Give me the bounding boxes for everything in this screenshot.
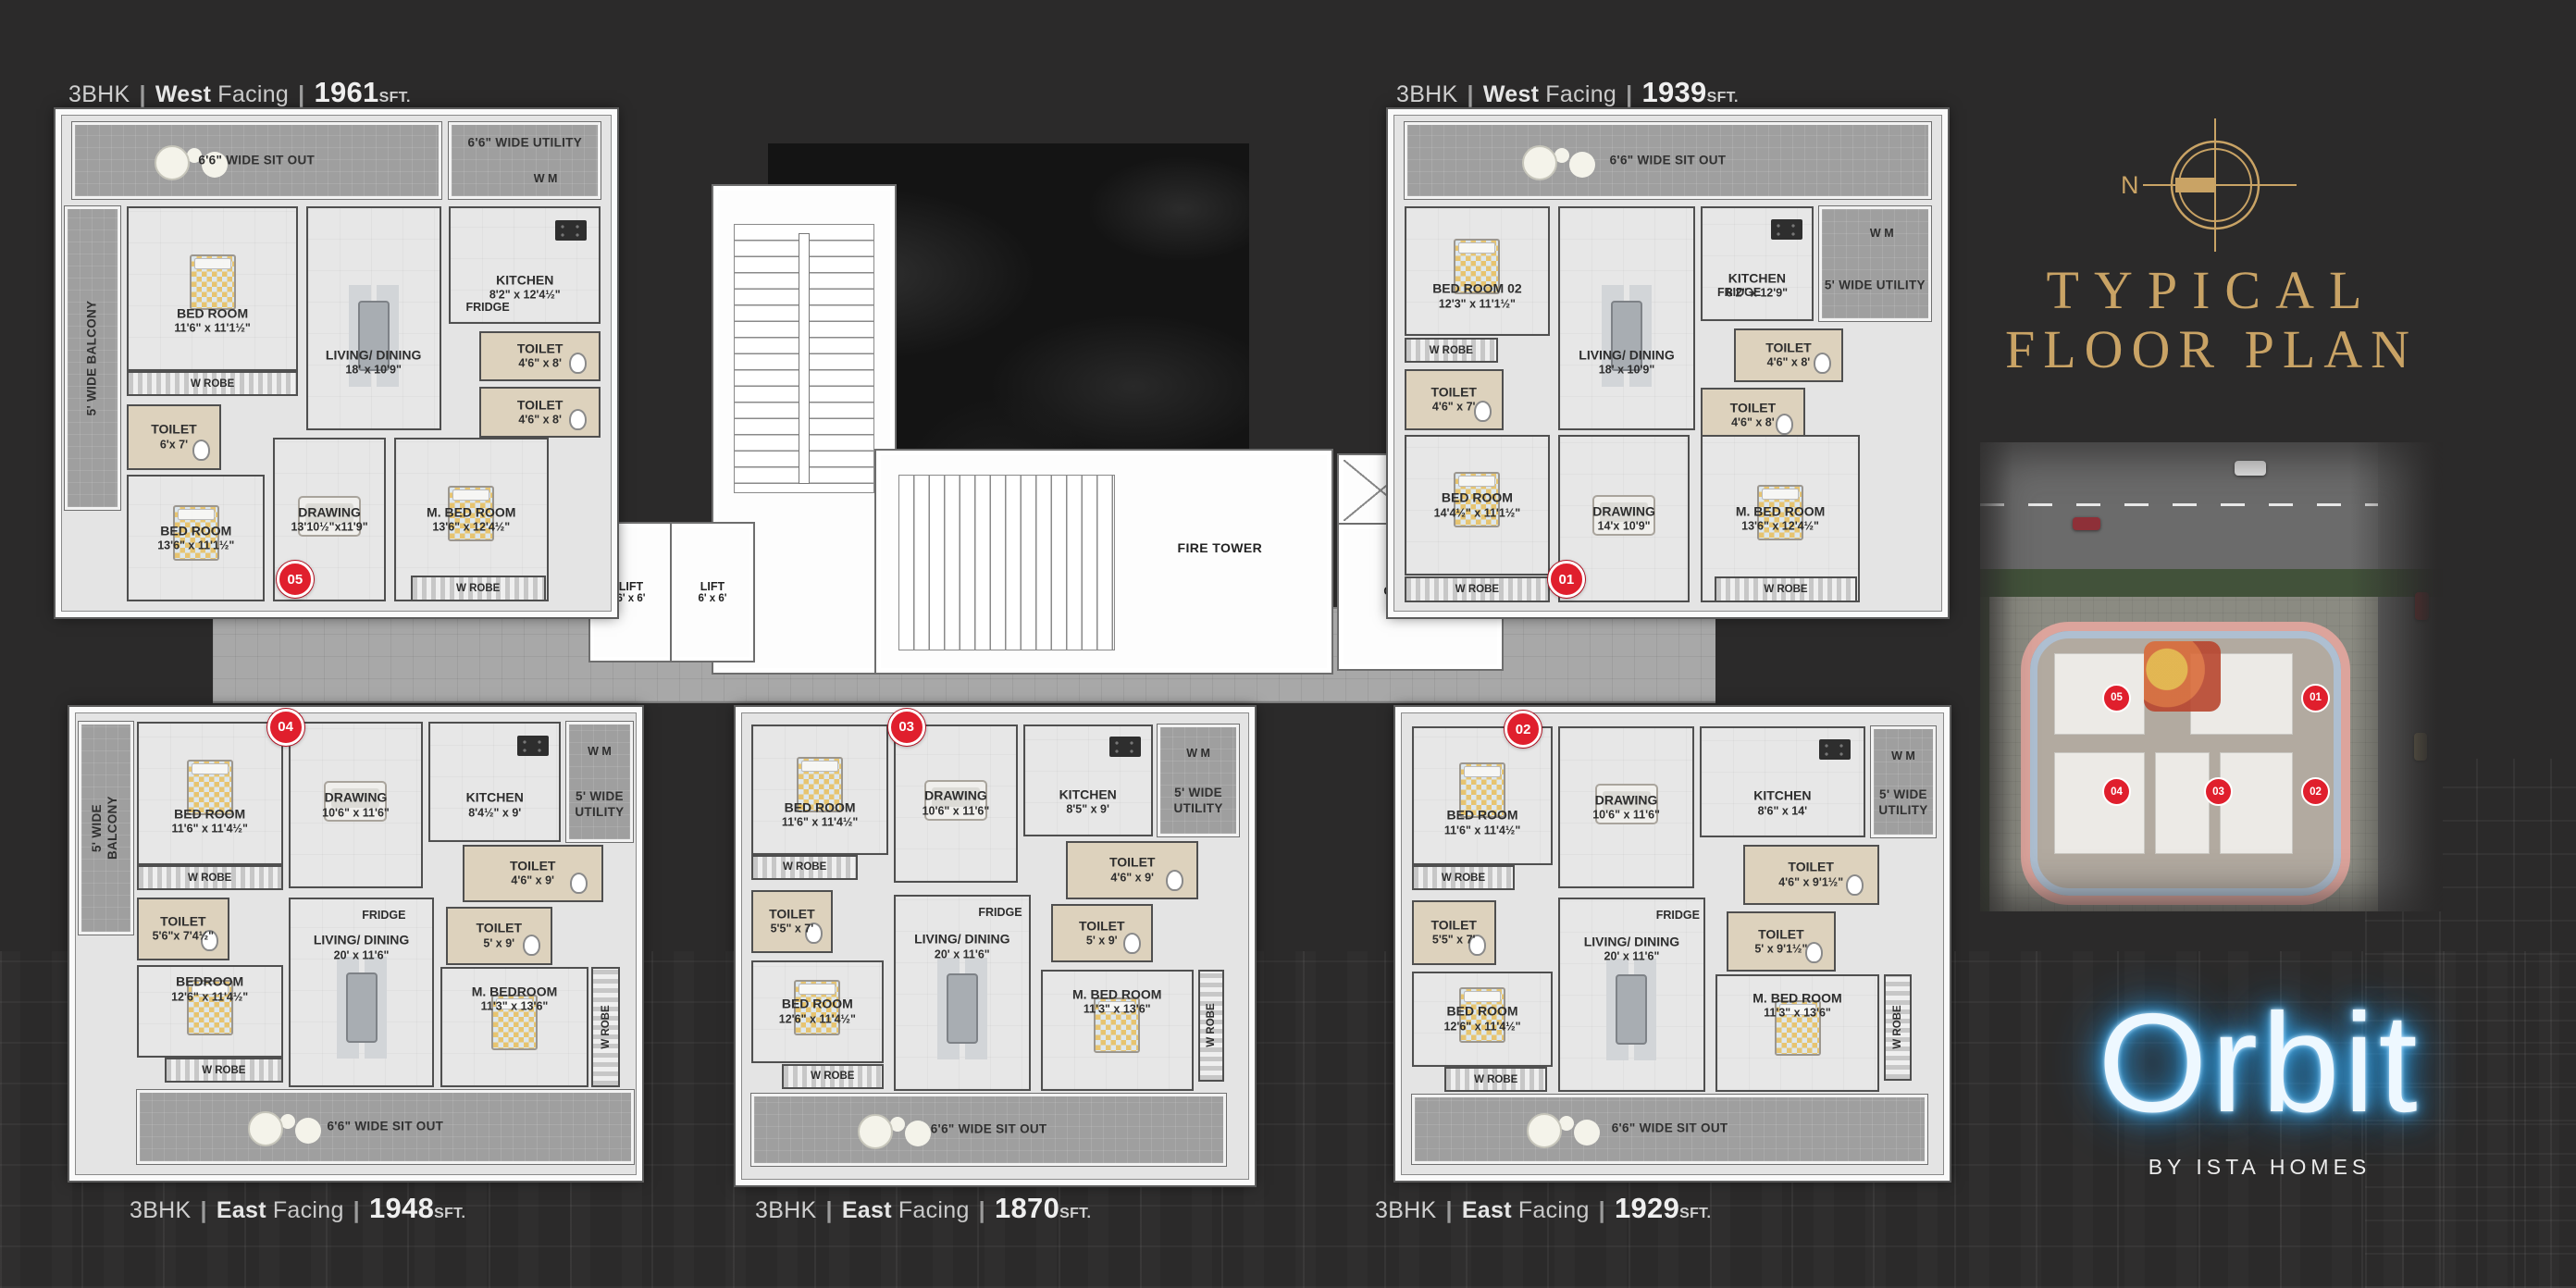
area-label: 6'6" WIDE SIT OUT [1425,1121,1915,1137]
stove-icon [517,736,549,756]
north-label: N [2121,171,2139,199]
room-drawing: DRAWING10'6" x 11'6" [1558,726,1694,888]
road-vertical [2378,442,2443,911]
sofa-icon [924,780,987,821]
room-toilet: TOILET4'6" x 9' [1066,841,1198,899]
room-w-robe: W ROBE [411,576,546,601]
title-part-ta: 1948 [369,1192,434,1224]
stove-icon [1819,739,1851,760]
area-label: 5' WIDE BALCONY [90,776,121,880]
unit-title-01: 3BHK|WestFacing|1939SFT. [1396,76,1739,109]
fire-stair-treads [898,475,1114,651]
wc-icon [570,873,588,894]
room-bed-room: BED ROOM11'6" x 11'4½" [751,724,888,855]
area-label: FRIDGE [1641,909,1715,923]
bed-icon [187,760,233,815]
dining-icon [1616,974,1647,1045]
wc-icon [523,935,540,956]
room-m-bed-room: M. BED ROOM11'3" x 13'6" [1041,970,1194,1091]
label-fridge: FRIDGE [965,902,1036,925]
unit-number-badge-02: 02 [1505,711,1542,748]
bed-icon [1094,997,1140,1053]
room-bed-room: BED ROOM11'6" x 11'1½" [127,206,297,370]
stair-rail [799,233,810,483]
room-dimension: 11'6" x 11'4½" [1417,824,1549,838]
bed-icon [797,757,843,812]
floor-plan-unit-05: 6'6" WIDE SIT OUT6'6" WIDE UTILITYW M5' … [56,109,617,617]
room-drawing: DRAWING10'6" x 11'6" [289,722,424,888]
label-w-m: W M [566,740,633,763]
room-m-bedroom: M. BEDROOM11'3" x 13'6" [440,967,589,1087]
bed-icon [794,980,840,1035]
title-part-sep: | [826,1197,833,1223]
floor-plan-unit-01: 6'6" WIDE SIT OUTBED ROOM 0212'3" x 11'1… [1388,109,1948,617]
title-part-sep: | [298,81,304,107]
unit-title-03: 3BHK|EastFacing|1870SFT. [755,1192,1091,1225]
title-part-ta: 1929 [1615,1192,1679,1224]
title-part-tb: 3BHK [130,1197,192,1223]
title-part-tu: SFT. [379,90,411,105]
room-name: TOILET [755,906,829,923]
floor-plan-unit-04: 5' WIDE BALCONYBED ROOM11'6" x 11'4½"W R… [69,707,642,1181]
title-part-tf: West [1483,81,1539,107]
room-6-6-wide-sit-out: 6'6" WIDE SIT OUT [1405,122,1931,199]
room-toilet: TOILET4'6" x 9'1½" [1743,845,1879,905]
area-label: W ROBE [599,1005,612,1048]
stove-icon [1109,737,1141,757]
room-bed-room: BED ROOM12'6" x 11'4½" [1412,972,1554,1067]
area-label: W M [1851,227,1913,241]
room-w-robe: W ROBE [137,865,283,890]
room-living-dining: LIVING/ DINING18' x 10'9" [1558,206,1695,430]
unit-title-05: 3BHK|WestFacing|1961SFT. [68,76,411,109]
dining-icon [346,972,378,1043]
room-5-wide-balcony: 5' WIDE BALCONY [65,206,120,510]
sofa-icon [298,496,361,537]
stove-icon [1771,219,1802,240]
wc-icon [1805,942,1823,963]
area-label: FRIDGE [451,302,525,316]
room-name: TOILET [1415,917,1492,934]
title-part-ta: 1939 [1641,76,1706,108]
planter-icon [155,145,190,180]
area-label: FRIDGE [966,906,1034,921]
label-fridge: FRIDGE [449,296,526,321]
running-track [2021,622,2350,904]
car [2415,592,2429,620]
wc-icon [192,440,210,461]
title-part-tu: SFT. [434,1206,465,1221]
room-name: TOILET [1055,918,1149,935]
room-bed-room: BED ROOM11'6" x 11'4½" [1412,726,1554,865]
site-unit-marker-05: 05 [2102,684,2131,712]
unit-number-badge-04: 04 [267,709,304,746]
label-w-m: W M [1849,221,1914,246]
room-name: LIVING/ DINING [293,933,430,949]
room-name: TOILET [1071,855,1194,872]
room-dimension: 20' x 11'6" [898,947,1026,962]
planter-icon [1522,145,1557,180]
lift-1-dim: 6' x 6' [616,593,645,604]
area-label: W ROBE [415,582,541,595]
lift-2: LIFT 6' x 6' [675,527,749,657]
room-6-6-wide-sit-out: 6'6" WIDE SIT OUT [72,122,441,199]
area-label: FRIDGE [1703,287,1777,302]
title-part-tw: Facing [273,1197,344,1223]
area-label: W ROBE [1409,583,1545,596]
bed-icon [190,254,236,310]
area-label: W ROBE [1416,871,1511,884]
wc-icon [569,353,587,374]
room-toilet: TOILET4'6" x 7' [1405,369,1504,430]
room-name: TOILET [1408,384,1500,401]
brand-logo: Orbit [2047,983,2472,1145]
room-dimension: 8'6" x 14' [1704,804,1860,819]
bed-icon [491,995,538,1050]
site-unit-marker-02: 02 [2301,777,2330,806]
room-bed-room-02: BED ROOM 0212'3" x 11'1½" [1405,206,1550,336]
label-fridge: FRIDGE [344,905,423,928]
label-w-m: W M [513,167,578,192]
title-part-sep: | [140,81,146,107]
courtyard [2030,631,2341,895]
title-part-ta: 1961 [314,76,378,108]
wc-icon [1123,933,1141,954]
title-part-sep: | [1599,1197,1605,1223]
title-part-sep: | [1626,81,1632,107]
bed-icon [1757,485,1803,540]
room-name: LIVING/ DINING [898,931,1026,947]
room-bed-room: BED ROOM11'6" x 11'4½" [137,722,283,865]
title-part-tb: 3BHK [1375,1197,1437,1223]
room-w-robe: W ROBE [751,855,858,880]
area-label: FRIDGE [346,909,422,923]
bed-icon [1459,762,1505,818]
tower-roof [2156,753,2210,853]
area-label: W ROBE [1205,1004,1218,1047]
room-dimension: 8'4½" x 9' [433,806,556,821]
area-label: 6'6" WIDE SIT OUT [763,1121,1214,1137]
lift-2-label: LIFT [700,580,724,593]
fire-tower: FIRE TOWER [881,455,1327,668]
wc-icon [1468,935,1486,956]
room-toilet: TOILET5' x 9' [1051,904,1153,962]
bed-icon [1775,1000,1821,1056]
title-part-tb: 3BHK [755,1197,817,1223]
planter-icon [1527,1113,1562,1148]
room-toilet: TOILET5' x 9' [446,907,552,965]
bed-icon [1454,239,1500,294]
area-label: 6'6" WIDE UTILITY [455,136,595,152]
floor-plan-unit-03: BED ROOM11'6" x 11'4½"W ROBEDRAWING10'6"… [736,707,1255,1185]
title-part-tf: West [155,81,211,107]
title-part-sep: | [1446,1197,1453,1223]
building-plot [1989,597,2378,911]
sofa-icon [1592,495,1655,536]
label-fridge: FRIDGE [1640,905,1715,928]
room-toilet: TOILET4'6" x 8' [479,331,601,382]
room-toilet: TOILET4'6" x 8' [479,387,601,438]
fire-tower-label: FIRE TOWER [1126,540,1313,555]
wc-icon [201,930,218,951]
area-label: 5' WIDE UTILITY [1824,278,1926,293]
room-6-6-wide-sit-out: 6'6" WIDE SIT OUT [137,1090,634,1164]
room-5-wide-utility: 5' WIDE UTILITY [1158,724,1239,836]
site-unit-marker-01: 01 [2301,684,2330,712]
planter-icon [248,1111,283,1146]
room-w-robe: W ROBE [591,967,619,1087]
room-toilet: TOILET6'x 7' [127,404,220,470]
floor-plan-poster: 2.10M CORRIDOR FIRE TOWER LIFT 6' x 6' L… [0,0,2576,1288]
dining-icon [358,301,390,371]
area-label: W ROBE [1719,583,1852,596]
room-dimension: 11'6" x 11'1½" [132,322,292,337]
area-label: W M [568,745,632,760]
north-compass-icon: N [2086,113,2308,257]
title-part-tf: East [1462,1197,1512,1223]
title-part-tb: 3BHK [68,81,130,107]
room-m-bed-room: M. BED ROOM11'3" x 13'6" [1715,974,1878,1093]
area-label: 5' WIDE UTILITY [1875,787,1932,819]
room-6-6-wide-sit-out: 6'6" WIDE SIT OUT [751,1094,1226,1166]
title-part-tw: Facing [217,81,289,107]
title-part-tu: SFT. [1059,1206,1091,1221]
area-label: W ROBE [1891,1005,1904,1048]
area-label: 6'6" WIDE SIT OUT [82,153,431,168]
bed-icon [173,505,219,561]
area-label: W M [1159,748,1237,762]
area-label: W ROBE [755,861,854,873]
room-kitchen: KITCHEN8'6" x 14' [1700,726,1865,837]
area-label: W ROBE [132,377,292,390]
room-bedroom: BEDROOM12'6" x 11'4½" [137,965,283,1058]
room-bed-room: BED ROOM12'6" x 11'4½" [751,960,884,1063]
area-label: 5' WIDE UTILITY [570,789,628,821]
sofa-icon [324,781,387,822]
room-dimension: 20' x 11'6" [1563,949,1700,964]
room-dimension: 11'6" x 11'4½" [756,816,884,831]
car [2073,517,2100,530]
car [2414,733,2427,761]
title-part-sep: | [353,1197,360,1223]
wc-icon [569,409,587,430]
title-part-sep: | [979,1197,985,1223]
tower-roof [2055,753,2144,853]
title-part-tb: 3BHK [1396,81,1458,107]
title-part-sep: | [1468,81,1474,107]
area-label: 5' WIDE UTILITY [1162,786,1235,817]
room-name: KITCHEN [1704,788,1860,805]
title-part-tf: East [217,1197,266,1223]
room-dimension: 11'6" x 11'4½" [142,823,279,837]
room-drawing: DRAWING10'6" x 11'6" [894,724,1019,884]
room-w-robe: W ROBE [1412,865,1516,890]
label-w-m: W M [1158,743,1239,766]
unit-number-badge-01: 01 [1548,561,1585,598]
room-name: TOILET [141,913,226,930]
room-name: TOILET [1730,926,1831,943]
room-w-robe: W ROBE [165,1058,282,1083]
unit-title-02: 3BHK|EastFacing|1929SFT. [1375,1192,1711,1225]
room-toilet: TOILET5'5" x 7' [751,890,833,953]
title-part-tw: Facing [1518,1197,1590,1223]
label-w-m: W M [1871,745,1936,768]
room-dimension: 8'5" x 9' [1027,803,1148,818]
room-w-robe: W ROBE [1444,1067,1548,1092]
wc-icon [1846,874,1864,896]
room-name: TOILET [1748,859,1875,875]
page-title-line2: FLOOR PLAN [1989,319,2434,381]
unit-title-04: 3BHK|EastFacing|1948SFT. [130,1192,465,1225]
area-label: W ROBE [142,871,279,884]
room-kitchen: KITCHEN8'4½" x 9' [428,722,561,842]
bed-icon [448,486,494,541]
room-name: KITCHEN [1027,786,1148,803]
wc-icon [1474,401,1492,422]
room-toilet: TOILET4'6" x 9' [463,845,603,903]
stove-icon [555,220,587,241]
area-label: W ROBE [1448,1072,1543,1085]
room-dimension: 20' x 11'6" [293,948,430,963]
unit-number-badge-03: 03 [888,709,925,746]
title-part-tu: SFT. [1679,1206,1711,1221]
room-name: LIVING/ DINING [1563,934,1700,950]
area-label: W M [1872,749,1935,764]
title-part-sep: | [201,1197,207,1223]
wc-icon [805,923,823,944]
room-5-wide-balcony: 5' WIDE BALCONY [79,722,132,935]
room-name: KITCHEN [454,272,596,289]
room-w-robe: W ROBE [127,371,297,397]
title-part-ta: 1870 [995,1192,1059,1224]
wc-icon [1166,870,1183,891]
tower-roof [2221,753,2292,853]
title-part-tf: East [842,1197,892,1223]
room-w-robe: W ROBE [1405,576,1550,602]
wc-icon [1814,353,1831,374]
room-toilet: TOILET5'5" x 7' [1412,900,1496,965]
room-w-robe: W ROBE [782,1064,884,1089]
page-title-line1: TYPICAL [1989,263,2434,319]
lift-2-dim: 6' x 6' [698,593,726,604]
room-living-dining: LIVING/ DINING18' x 10'9" [306,206,441,430]
room-w-robe: W ROBE [1198,970,1223,1082]
area-label: W M [514,172,577,187]
room-w-robe: W ROBE [1715,576,1857,602]
title-part-tw: Facing [898,1197,970,1223]
room-kitchen: KITCHEN8'5" x 9' [1023,724,1153,836]
bed-icon [1454,472,1500,527]
lift-1-label: LIFT [619,580,643,593]
area-label: W ROBE [786,1070,880,1083]
area-label: 6'6" WIDE SIT OUT [1418,153,1918,168]
site-unit-marker-04: 04 [2102,777,2131,806]
green-belt [1980,569,2443,597]
room-5-wide-utility: 5' WIDE UTILITY [1871,726,1936,837]
bed-icon [187,980,233,1035]
page-title: TYPICAL FLOOR PLAN [1989,263,2434,381]
dining-icon [1611,301,1642,371]
room-toilet: TOILET5' x 9'1½" [1727,911,1835,972]
room-bed-room: BED ROOM14'4½" x 11'1½" [1405,435,1550,576]
title-part-tw: Facing [1545,81,1616,107]
wc-icon [1776,414,1793,435]
title-part-tu: SFT. [1707,90,1739,105]
site-plan-image: 0501040302 [1980,442,2443,911]
brand-byline: BY ISTA HOMES [2047,1155,2472,1180]
room-toilet: TOILET4'6" x 8' [1734,328,1844,382]
area-label: 5' WIDE BALCONY [84,301,100,416]
room-name: KITCHEN [433,790,556,807]
bed-icon [1459,987,1505,1043]
area-label: W ROBE [169,1063,279,1076]
floor-plan-unit-02: BED ROOM11'6" x 11'4½"W ROBEDRAWING10'6"… [1395,707,1950,1181]
site-unit-marker-03: 03 [2204,777,2233,806]
car [2235,461,2266,476]
playground [2144,641,2221,711]
dining-icon [947,973,978,1044]
area-label: 6'6" WIDE SIT OUT [149,1119,621,1134]
planter-icon [858,1114,893,1149]
road-lane-marking [1980,503,2443,506]
sofa-icon [1595,784,1658,824]
room-bed-room: BED ROOM13'6" x 11'1½" [127,475,265,601]
area-label: W ROBE [1408,343,1494,356]
room-6-6-wide-sit-out: 6'6" WIDE SIT OUT [1412,1095,1928,1164]
room-name: TOILET [130,422,217,439]
label-fridge: FRIDGE [1701,281,1777,306]
room-w-robe: W ROBE [1884,974,1911,1081]
room-toilet: TOILET5'6"x 7'4½" [137,898,229,960]
room-dimension: 12'3" x 11'1½" [1409,297,1545,312]
room-w-robe: W ROBE [1405,338,1498,364]
